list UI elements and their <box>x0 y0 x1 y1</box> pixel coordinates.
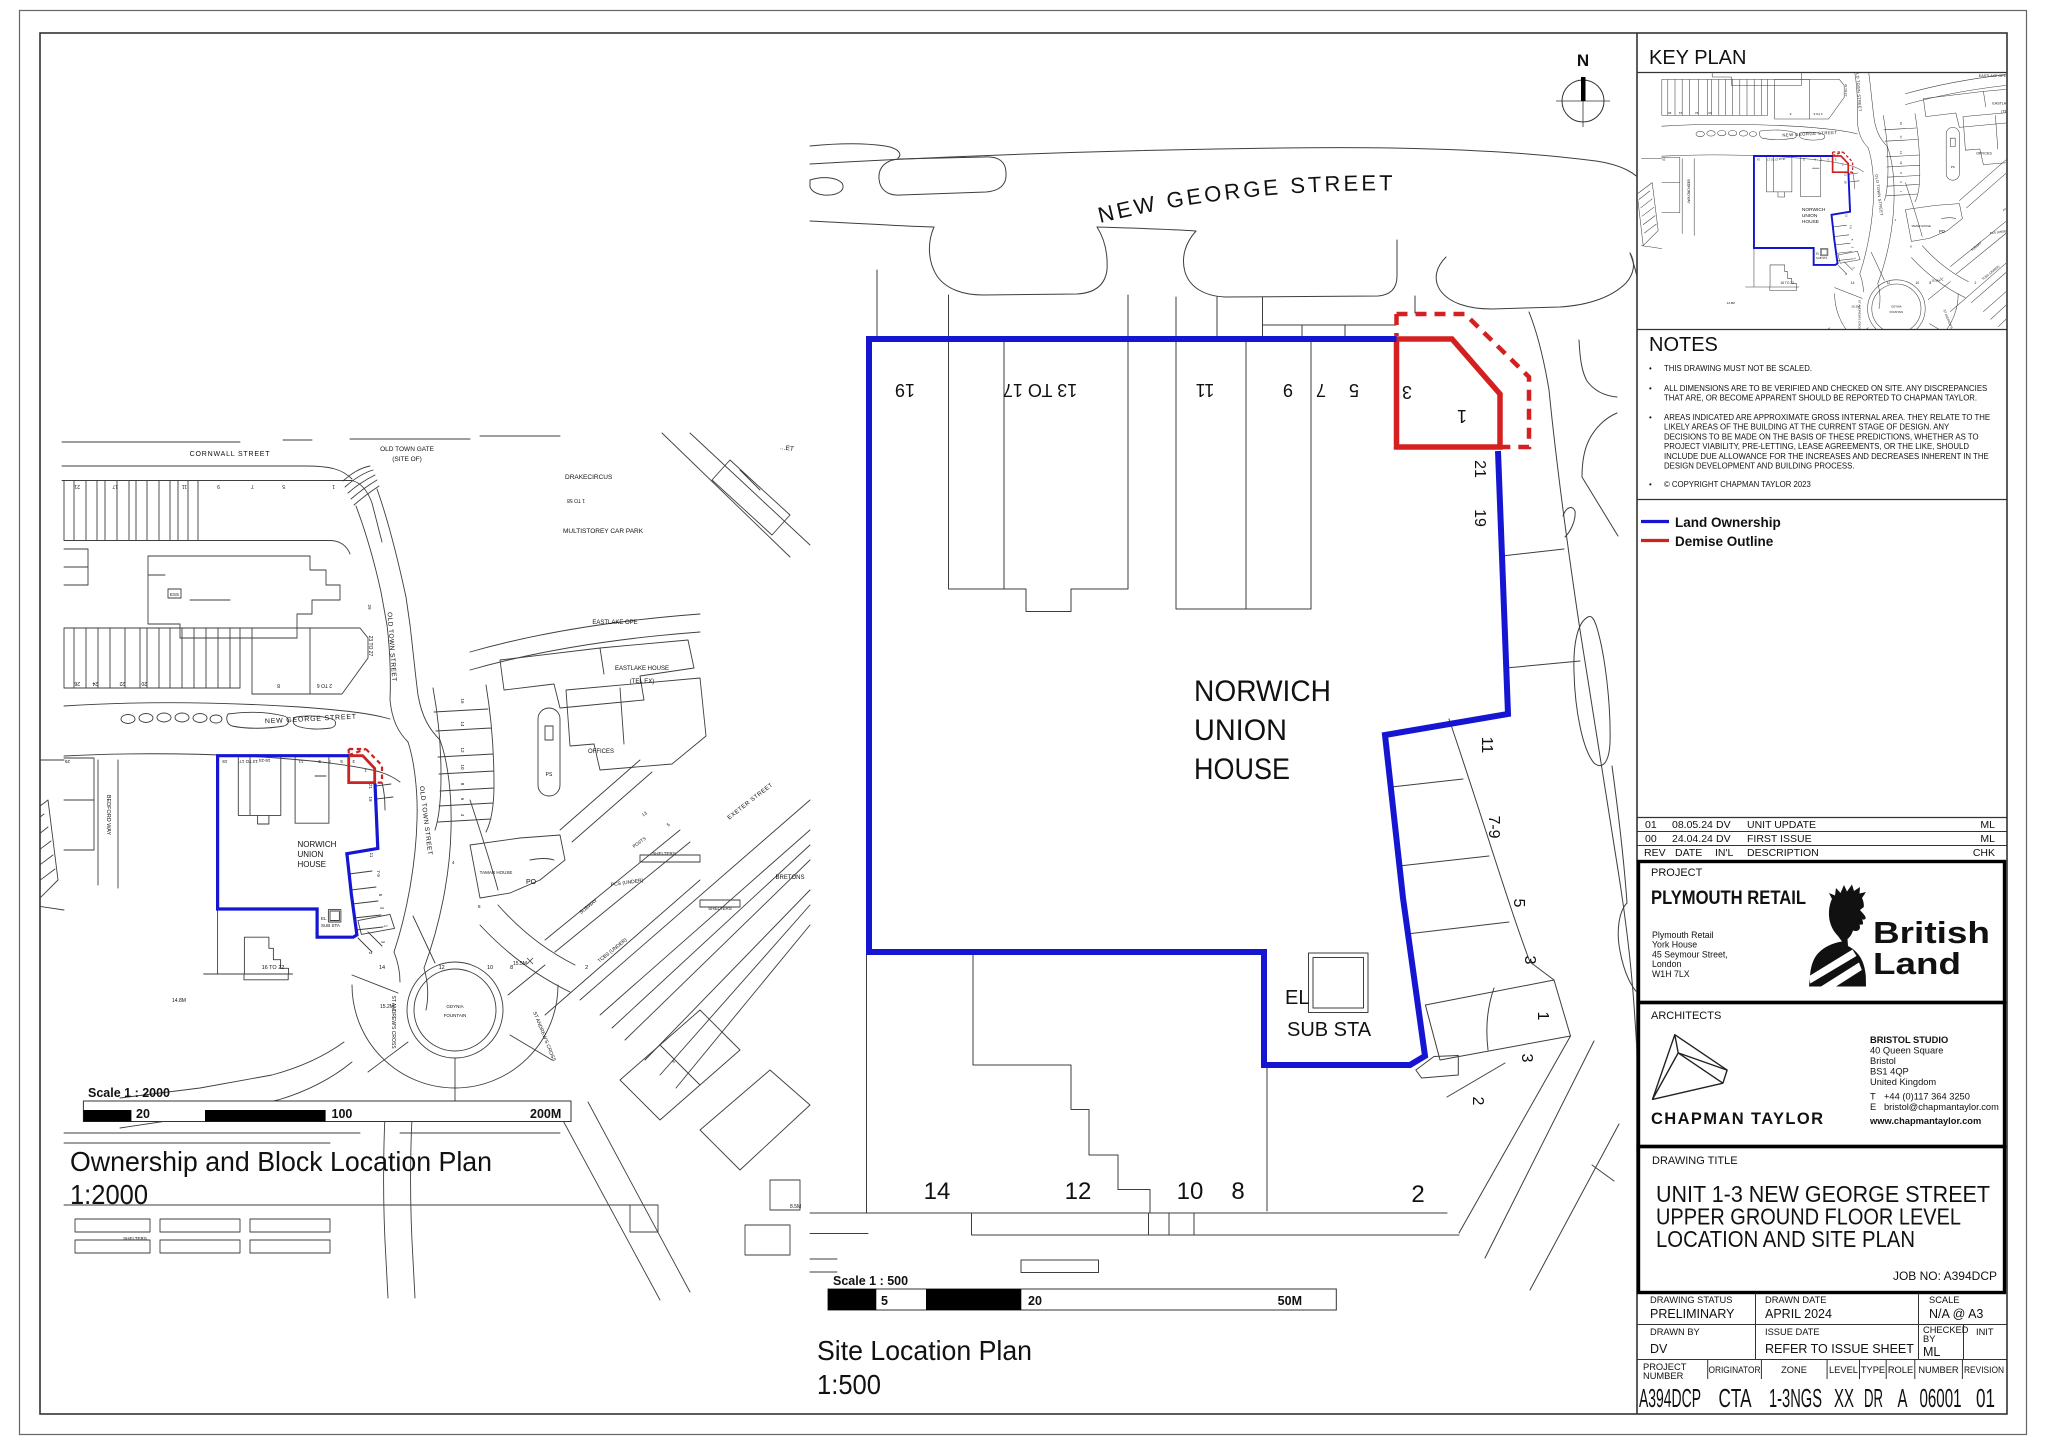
svg-text:DRAWING STATUS: DRAWING STATUS <box>1650 1295 1732 1305</box>
svg-text:CTA: CTA <box>1719 1383 1752 1413</box>
svg-text:DECISIONS TO BE MADE ON THE BA: DECISIONS TO BE MADE ON THE BASIS OF THE… <box>1664 432 1979 441</box>
svg-text:ML: ML <box>1923 1345 1940 1359</box>
svg-text:APRIL 2024: APRIL 2024 <box>1765 1307 1832 1321</box>
svg-text:3: 3 <box>1402 382 1412 402</box>
svg-text:ISSUE DATE: ISSUE DATE <box>1765 1327 1820 1337</box>
svg-text:+44 (0)117 364 3250: +44 (0)117 364 3250 <box>1884 1092 1970 1102</box>
svg-text:10: 10 <box>487 965 493 971</box>
svg-text:1: 1 <box>1534 1012 1551 1021</box>
svg-text:Ownership and Block Location P: Ownership and Block Location Plan <box>70 1146 492 1177</box>
svg-text:11: 11 <box>182 483 187 489</box>
svg-text:14: 14 <box>379 965 385 971</box>
svg-text:SHELTERS: SHELTERS <box>123 1236 146 1241</box>
svg-text:PRELIMINARY: PRELIMINARY <box>1650 1307 1735 1321</box>
svg-text:DESCRIPTION: DESCRIPTION <box>1747 847 1819 859</box>
svg-text:EL: EL <box>321 916 327 921</box>
svg-text:W1H 7LX: W1H 7LX <box>1652 969 1690 979</box>
svg-text:•: • <box>1649 480 1652 489</box>
svg-text:3: 3 <box>380 907 385 910</box>
svg-text:7: 7 <box>1316 380 1326 400</box>
svg-text:DESIGN DEVELOPMENT AND BUILDIN: DESIGN DEVELOPMENT AND BUILDING PROCESS. <box>1664 462 1855 471</box>
svg-text:Site Location Plan: Site Location Plan <box>817 1335 1032 1366</box>
svg-text:01: 01 <box>1645 819 1657 831</box>
svg-text:PLYMOUTH RETAIL: PLYMOUTH RETAIL <box>1651 887 1806 909</box>
svg-text:16: 16 <box>460 698 465 704</box>
svg-text:EASTLAKE OPE: EASTLAKE OPE <box>592 620 637 626</box>
svg-text:6: 6 <box>460 798 465 801</box>
svg-text:DV: DV <box>1716 833 1731 845</box>
svg-text:...ET: ...ET <box>780 444 795 453</box>
svg-text:DV: DV <box>1716 819 1731 831</box>
svg-text:1-3NGS: 1-3NGS <box>1769 1383 1822 1413</box>
svg-text:40 Queen Square: 40 Queen Square <box>1870 1046 1943 1056</box>
svg-text:20: 20 <box>136 1107 150 1121</box>
svg-text:AREAS INDICATED ARE APPROXIMAT: AREAS INDICATED ARE APPROXIMATE GROSS IN… <box>1664 413 1990 422</box>
svg-text:T: T <box>1870 1092 1876 1102</box>
svg-text:Scale 1 : 2000: Scale 1 : 2000 <box>88 1086 170 1100</box>
svg-text:DRAWN DATE: DRAWN DATE <box>1765 1295 1826 1305</box>
svg-text:A394DCP: A394DCP <box>1639 1383 1701 1413</box>
svg-text:DATE: DATE <box>1675 847 1702 859</box>
svg-text:1: 1 <box>384 925 389 928</box>
svg-text:12: 12 <box>1065 1178 1092 1205</box>
svg-text:10: 10 <box>460 764 465 770</box>
svg-text:•: • <box>1649 413 1652 422</box>
svg-text:06001: 06001 <box>1920 1383 1962 1413</box>
svg-text:PCS (UNDER): PCS (UNDER) <box>610 878 644 889</box>
svg-text:12: 12 <box>439 965 445 971</box>
svg-text:E: E <box>1870 1102 1876 1112</box>
svg-text:19: 19 <box>895 380 915 400</box>
svg-text:Demise Outline: Demise Outline <box>1675 534 1774 549</box>
svg-text:29: 29 <box>367 604 372 610</box>
svg-text:DRAKECIRCUS: DRAKECIRCUS <box>565 474 613 481</box>
svg-text:21: 21 <box>368 784 373 790</box>
svg-text:CHAPMAN TAYLOR: CHAPMAN TAYLOR <box>1651 1110 1823 1128</box>
svg-text:1: 1 <box>1457 406 1467 426</box>
svg-text:5: 5 <box>340 759 343 764</box>
svg-text:OFFICES: OFFICES <box>588 749 614 755</box>
svg-text:PO: PO <box>526 879 537 886</box>
svg-text:Land: Land <box>1873 946 1961 981</box>
svg-text:(SITE OF): (SITE OF) <box>392 456 422 463</box>
svg-text:TCBS (UNDER): TCBS (UNDER) <box>597 937 629 964</box>
svg-text:LEVEL: LEVEL <box>1829 1365 1858 1375</box>
svg-text:5: 5 <box>282 483 285 489</box>
svg-text:A: A <box>1898 1383 1908 1413</box>
svg-text:NORWICH: NORWICH <box>1194 675 1331 708</box>
svg-text:FIRST ISSUE: FIRST ISSUE <box>1747 833 1812 845</box>
svg-text:EXETER STREET: EXETER STREET <box>727 782 775 821</box>
svg-text:2: 2 <box>1469 1097 1486 1106</box>
svg-text:ML: ML <box>1980 819 1995 831</box>
svg-text:1:500: 1:500 <box>817 1369 881 1400</box>
svg-text:7: 7 <box>251 483 254 489</box>
svg-text:14.8M: 14.8M <box>172 998 186 1004</box>
svg-text:2: 2 <box>368 952 373 955</box>
svg-text:01: 01 <box>1976 1383 1995 1413</box>
svg-text:REV: REV <box>1644 847 1666 859</box>
svg-text:5: 5 <box>378 894 383 897</box>
svg-text:11: 11 <box>369 853 374 858</box>
svg-text:NEW GEORGE STREET: NEW GEORGE STREET <box>265 714 357 726</box>
svg-text:NUMBER: NUMBER <box>1643 1371 1684 1381</box>
svg-text:OLD TOWN STREET: OLD TOWN STREET <box>418 786 433 856</box>
svg-text:19: 19 <box>368 796 373 802</box>
svg-text:8.5M: 8.5M <box>790 1204 801 1210</box>
svg-text:1 TO 58: 1 TO 58 <box>567 497 585 503</box>
svg-text:LIKELY AREAS OF THE BUILDING A: LIKELY AREAS OF THE BUILDING AT THE CURR… <box>1664 423 1950 432</box>
svg-text:8: 8 <box>1231 1178 1244 1205</box>
svg-text:19: 19 <box>222 759 228 764</box>
svg-text:NOTES: NOTES <box>1649 334 1718 356</box>
svg-text:9: 9 <box>217 483 220 489</box>
svg-text:LOCATION AND SITE PLAN: LOCATION AND SITE PLAN <box>1656 1226 1915 1252</box>
svg-text:7-9: 7-9 <box>376 870 381 877</box>
svg-text:PS: PS <box>546 772 553 778</box>
svg-text:14: 14 <box>460 721 465 727</box>
svg-text:Scale 1 : 500: Scale 1 : 500 <box>833 1274 908 1288</box>
svg-text:08.05.24: 08.05.24 <box>1672 819 1713 831</box>
svg-text:IN'L: IN'L <box>1715 847 1734 859</box>
svg-text:14: 14 <box>924 1178 951 1205</box>
svg-text:N/A @ A3: N/A @ A3 <box>1929 1307 1983 1321</box>
svg-text:PROJECT: PROJECT <box>1651 867 1703 879</box>
svg-text:ROLE: ROLE <box>1888 1365 1913 1375</box>
svg-text:4: 4 <box>460 814 465 817</box>
svg-text:BY: BY <box>1923 1334 1935 1344</box>
svg-text:N: N <box>1577 51 1589 70</box>
svg-text:UNION: UNION <box>298 850 324 859</box>
svg-text:SCALE: SCALE <box>1929 1295 1960 1305</box>
svg-text:EASTLAKE HOUSE: EASTLAKE HOUSE <box>615 666 669 672</box>
svg-text:British: British <box>1873 915 1990 950</box>
svg-text:16-24: 16-24 <box>258 758 270 763</box>
svg-text:19: 19 <box>1471 509 1488 527</box>
svg-text:THAT ARE, OR BECOME APPARENT S: THAT ARE, OR BECOME APPARENT SHOULD BE R… <box>1664 394 1977 403</box>
svg-text:11: 11 <box>1478 737 1495 754</box>
svg-text:4: 4 <box>452 860 455 865</box>
svg-text:20: 20 <box>1028 1294 1042 1308</box>
svg-text:20: 20 <box>141 680 147 686</box>
svg-text:THIS DRAWING MUST NOT BE SCALE: THIS DRAWING MUST NOT BE SCALED. <box>1664 364 1812 373</box>
svg-text:13: 13 <box>641 810 648 817</box>
svg-text:ALL DIMENSIONS ARE TO BE VERIF: ALL DIMENSIONS ARE TO BE VERIFIED AND CH… <box>1664 384 1987 393</box>
svg-text:HOUSE: HOUSE <box>1194 753 1290 786</box>
svg-text:3: 3 <box>381 941 386 944</box>
svg-text:United Kingdom: United Kingdom <box>1870 1077 1936 1087</box>
svg-text:UNION: UNION <box>1194 714 1287 747</box>
svg-text:NUMBER: NUMBER <box>1918 1365 1959 1375</box>
svg-text:1: 1 <box>332 483 335 489</box>
svg-text:REVISION: REVISION <box>1964 1365 2004 1375</box>
svg-text:BRISTOL STUDIO: BRISTOL STUDIO <box>1870 1035 1948 1045</box>
svg-text:•: • <box>1649 384 1652 393</box>
svg-text:DR: DR <box>1864 1383 1883 1413</box>
svg-text:3: 3 <box>1521 956 1538 965</box>
svg-text:BS1 4QP: BS1 4QP <box>1870 1067 1909 1077</box>
svg-text:15.2M: 15.2M <box>380 1004 394 1010</box>
svg-text:INIT: INIT <box>1976 1327 1994 1337</box>
svg-text:11: 11 <box>1196 380 1215 400</box>
svg-text:ORIGINATOR: ORIGINATOR <box>1709 1365 1761 1375</box>
svg-text:7-9: 7-9 <box>1485 815 1502 838</box>
svg-text:FOUNTAIN: FOUNTAIN <box>444 1013 467 1018</box>
svg-text:OLD TOWN STREET: OLD TOWN STREET <box>386 612 398 682</box>
svg-text:2 TO 6: 2 TO 6 <box>317 682 332 688</box>
svg-text:15.5M: 15.5M <box>513 961 527 967</box>
svg-text:DRAWN BY: DRAWN BY <box>1650 1327 1700 1337</box>
svg-text:10: 10 <box>1177 1178 1204 1205</box>
svg-text:GDYNIA: GDYNIA <box>446 1004 463 1009</box>
svg-text:13 TO 17: 13 TO 17 <box>1003 380 1077 400</box>
svg-text:13 TO 17: 13 TO 17 <box>239 759 258 764</box>
svg-text:ESS: ESS <box>170 592 179 597</box>
svg-text:NORWICH: NORWICH <box>298 840 337 849</box>
svg-text:CORNWALL STREET: CORNWALL STREET <box>190 451 271 458</box>
svg-text:8: 8 <box>460 783 465 786</box>
svg-text:200M: 200M <box>530 1107 561 1121</box>
svg-text:(TEL EX): (TEL EX) <box>630 679 654 685</box>
svg-text:© COPYRIGHT CHAPMAN TAYLOR 202: © COPYRIGHT CHAPMAN TAYLOR 2023 <box>1664 480 1811 489</box>
svg-text:45 Seymour Street,: 45 Seymour Street, <box>1652 949 1728 959</box>
svg-text:26: 26 <box>74 680 80 686</box>
svg-text:24: 24 <box>92 680 98 686</box>
svg-text:12: 12 <box>460 747 465 753</box>
svg-text:8: 8 <box>478 904 481 909</box>
svg-text:3: 3 <box>1518 1054 1535 1063</box>
svg-text:16 TO 22: 16 TO 22 <box>262 965 285 971</box>
svg-text:TAMAR HOUSE: TAMAR HOUSE <box>480 870 513 875</box>
svg-text:50M: 50M <box>1278 1294 1302 1308</box>
svg-text:9: 9 <box>1283 380 1293 400</box>
svg-text:BEDFORD WAY: BEDFORD WAY <box>105 795 111 836</box>
svg-text:17: 17 <box>112 483 118 489</box>
svg-text:Plymouth Retail: Plymouth Retail <box>1652 930 1714 940</box>
svg-text:29: 29 <box>64 759 70 764</box>
svg-text:www.chapmantaylor.com: www.chapmantaylor.com <box>1869 1116 1981 1126</box>
svg-text:MULTISTOREY CAR PARK: MULTISTOREY CAR PARK <box>563 528 644 535</box>
svg-text:bristol@chapmantaylor.com: bristol@chapmantaylor.com <box>1884 1102 1999 1112</box>
svg-text:11: 11 <box>298 759 303 764</box>
svg-text:ML: ML <box>1980 833 1995 845</box>
svg-text:SUB STA: SUB STA <box>1287 1019 1372 1041</box>
svg-text:INCLUDE DUE ALLOWANCE FOR THE: INCLUDE DUE ALLOWANCE FOR THE INCREASES … <box>1664 452 1989 461</box>
svg-text:REFER TO ISSUE SHEET: REFER TO ISSUE SHEET <box>1765 1342 1914 1356</box>
svg-text:SUB STA: SUB STA <box>321 923 340 928</box>
svg-text:1:2000: 1:2000 <box>70 1179 148 1210</box>
svg-text:3: 3 <box>352 759 355 764</box>
svg-text:21: 21 <box>74 483 80 489</box>
svg-text:100: 100 <box>332 1107 353 1121</box>
svg-text:SHELTERS: SHELTERS <box>652 851 675 856</box>
svg-text:EL: EL <box>1285 987 1309 1009</box>
svg-text:2: 2 <box>585 965 588 971</box>
svg-text:5: 5 <box>1349 380 1359 400</box>
svg-text:Bristol: Bristol <box>1870 1056 1896 1066</box>
svg-text:DV: DV <box>1650 1342 1668 1356</box>
svg-text:POSTS: POSTS <box>632 836 647 849</box>
svg-text:HOUSE: HOUSE <box>298 860 326 869</box>
svg-text:Land Ownership: Land Ownership <box>1675 515 1781 530</box>
svg-text:ARCHITECTS: ARCHITECTS <box>1651 1010 1721 1022</box>
svg-text:London: London <box>1652 959 1681 969</box>
svg-text:5: 5 <box>1510 899 1527 908</box>
svg-text:TYPE: TYPE <box>1861 1365 1885 1375</box>
svg-text:OLD TOWN GATE: OLD TOWN GATE <box>380 446 434 453</box>
svg-text:5: 5 <box>881 1294 888 1308</box>
svg-text:PROJECT VIABILITY, PRE-LETTING: PROJECT VIABILITY, PRE-LETTING, LEASE AG… <box>1664 442 1969 451</box>
svg-text:24.04.24: 24.04.24 <box>1672 833 1713 845</box>
svg-text:XX: XX <box>1834 1383 1854 1413</box>
svg-text:UNIT UPDATE: UNIT UPDATE <box>1747 819 1816 831</box>
svg-text:York House: York House <box>1652 940 1697 950</box>
svg-text:SUBWAY: SUBWAY <box>579 897 600 915</box>
svg-text:CHK: CHK <box>1973 847 1995 859</box>
svg-text:KEY PLAN: KEY PLAN <box>1649 47 1746 69</box>
svg-text:JOB NO: A394DCP: JOB NO: A394DCP <box>1893 1269 1997 1283</box>
svg-text:2: 2 <box>1411 1181 1424 1208</box>
svg-text:8: 8 <box>277 682 280 688</box>
svg-text:5: 5 <box>666 822 671 828</box>
svg-text:•: • <box>1649 364 1652 373</box>
svg-text:21: 21 <box>1471 460 1488 478</box>
svg-text:ZONE: ZONE <box>1781 1365 1807 1375</box>
svg-text:23 TO 27: 23 TO 27 <box>367 636 373 657</box>
svg-text:SHELTERS: SHELTERS <box>708 906 731 911</box>
svg-text:22: 22 <box>119 680 125 686</box>
svg-text:00: 00 <box>1645 833 1657 845</box>
svg-text:DRAWING TITLE: DRAWING TITLE <box>1652 1155 1738 1167</box>
svg-text:NEW GEORGE STREET: NEW GEORGE STREET <box>1095 170 1395 227</box>
svg-text:BRETONS: BRETONS <box>776 875 805 881</box>
